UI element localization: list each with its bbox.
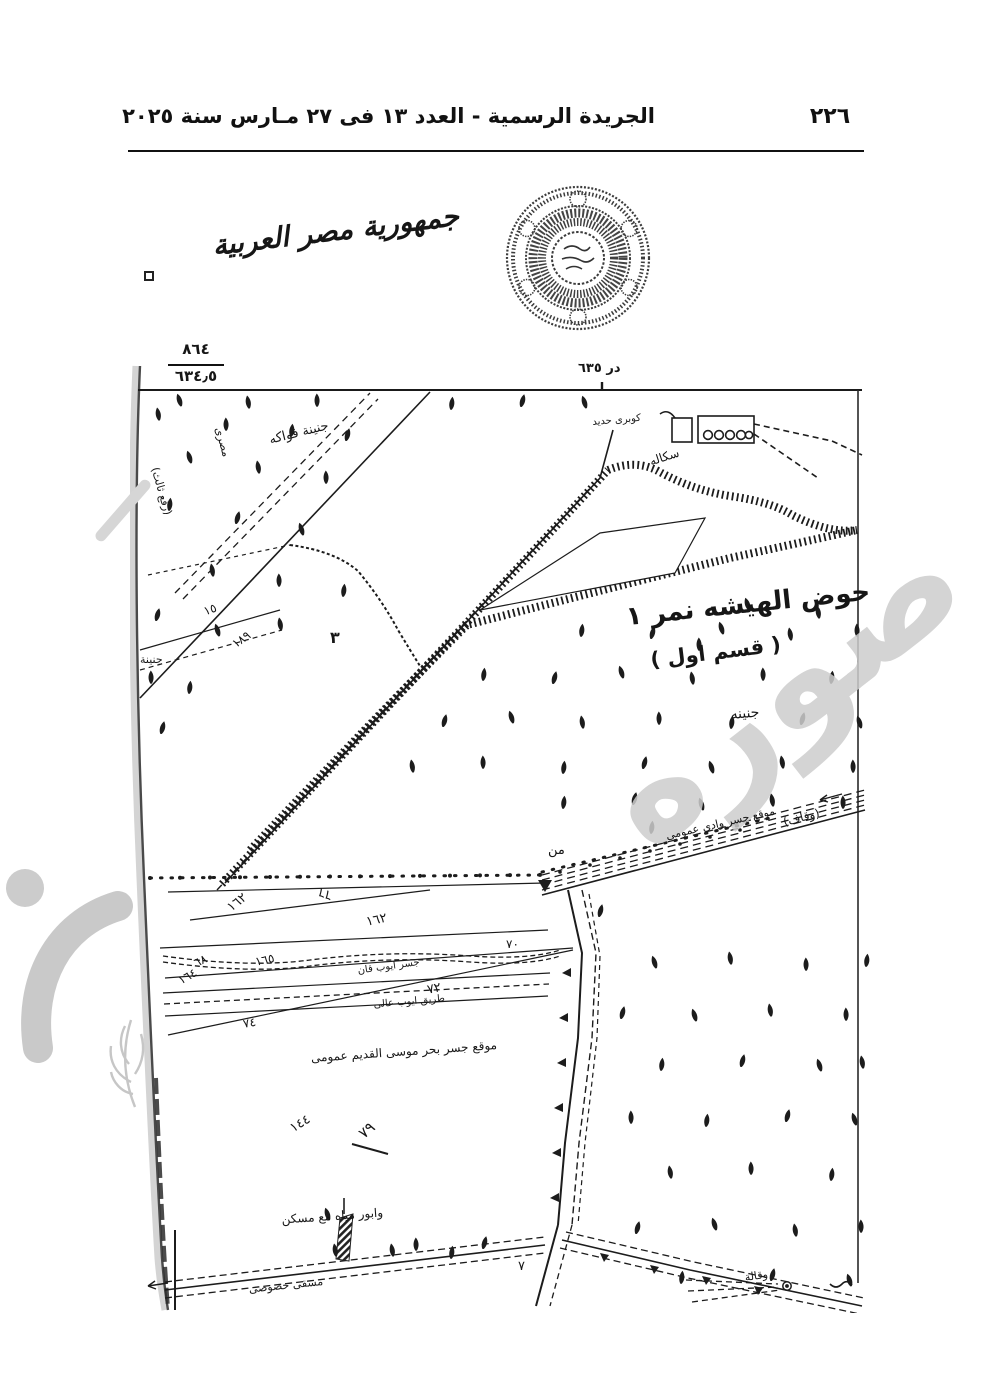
datum-label: در ٦٣٥ <box>578 362 621 375</box>
garden-small-label: جنينه <box>730 705 760 721</box>
plot-74: ٧٤ <box>242 1016 257 1030</box>
parcel-lines <box>160 883 573 1035</box>
buildings-top-right <box>660 412 862 478</box>
gazette-page: { "header": { "page_number": "٢٢٦", "tit… <box>0 0 991 1400</box>
scale-fraction-line <box>168 364 224 366</box>
scale-denominator: ٦٣٤٫٥ <box>164 369 228 384</box>
wekala-label: وقالة <box>744 1269 768 1283</box>
plot-7: ٧ <box>518 1260 525 1273</box>
official-seal <box>507 187 649 329</box>
map-scan: جمهورية مصر العربية ٨٦٤ ٦٣٤٫٥ در ٦٣٥ كوب… <box>130 178 870 1313</box>
map-drawing <box>130 178 870 1313</box>
road-along-railway <box>217 430 613 890</box>
page-number: ٢٢٦ <box>800 104 860 129</box>
gazette-title: الجريدة الرسمية - العدد ١٣ فى ٢٧ مـارس س… <box>225 104 655 128</box>
strike-line <box>352 1144 388 1154</box>
plot-70: ٧٠ <box>506 938 519 950</box>
page-header: الجريدة الرسمية - العدد ١٣ فى ٢٧ مـارس س… <box>0 0 991 178</box>
garden-left-label: جنينة <box>140 654 163 665</box>
header-rule <box>128 150 864 152</box>
plot-3: ٣ <box>330 630 340 646</box>
square-marker <box>145 272 153 280</box>
plot-165: ١٦٥ <box>254 952 275 968</box>
scale-numerator: ٨٦٤ <box>170 342 222 357</box>
vertical-road <box>558 890 600 1225</box>
min-label: من <box>548 844 565 857</box>
